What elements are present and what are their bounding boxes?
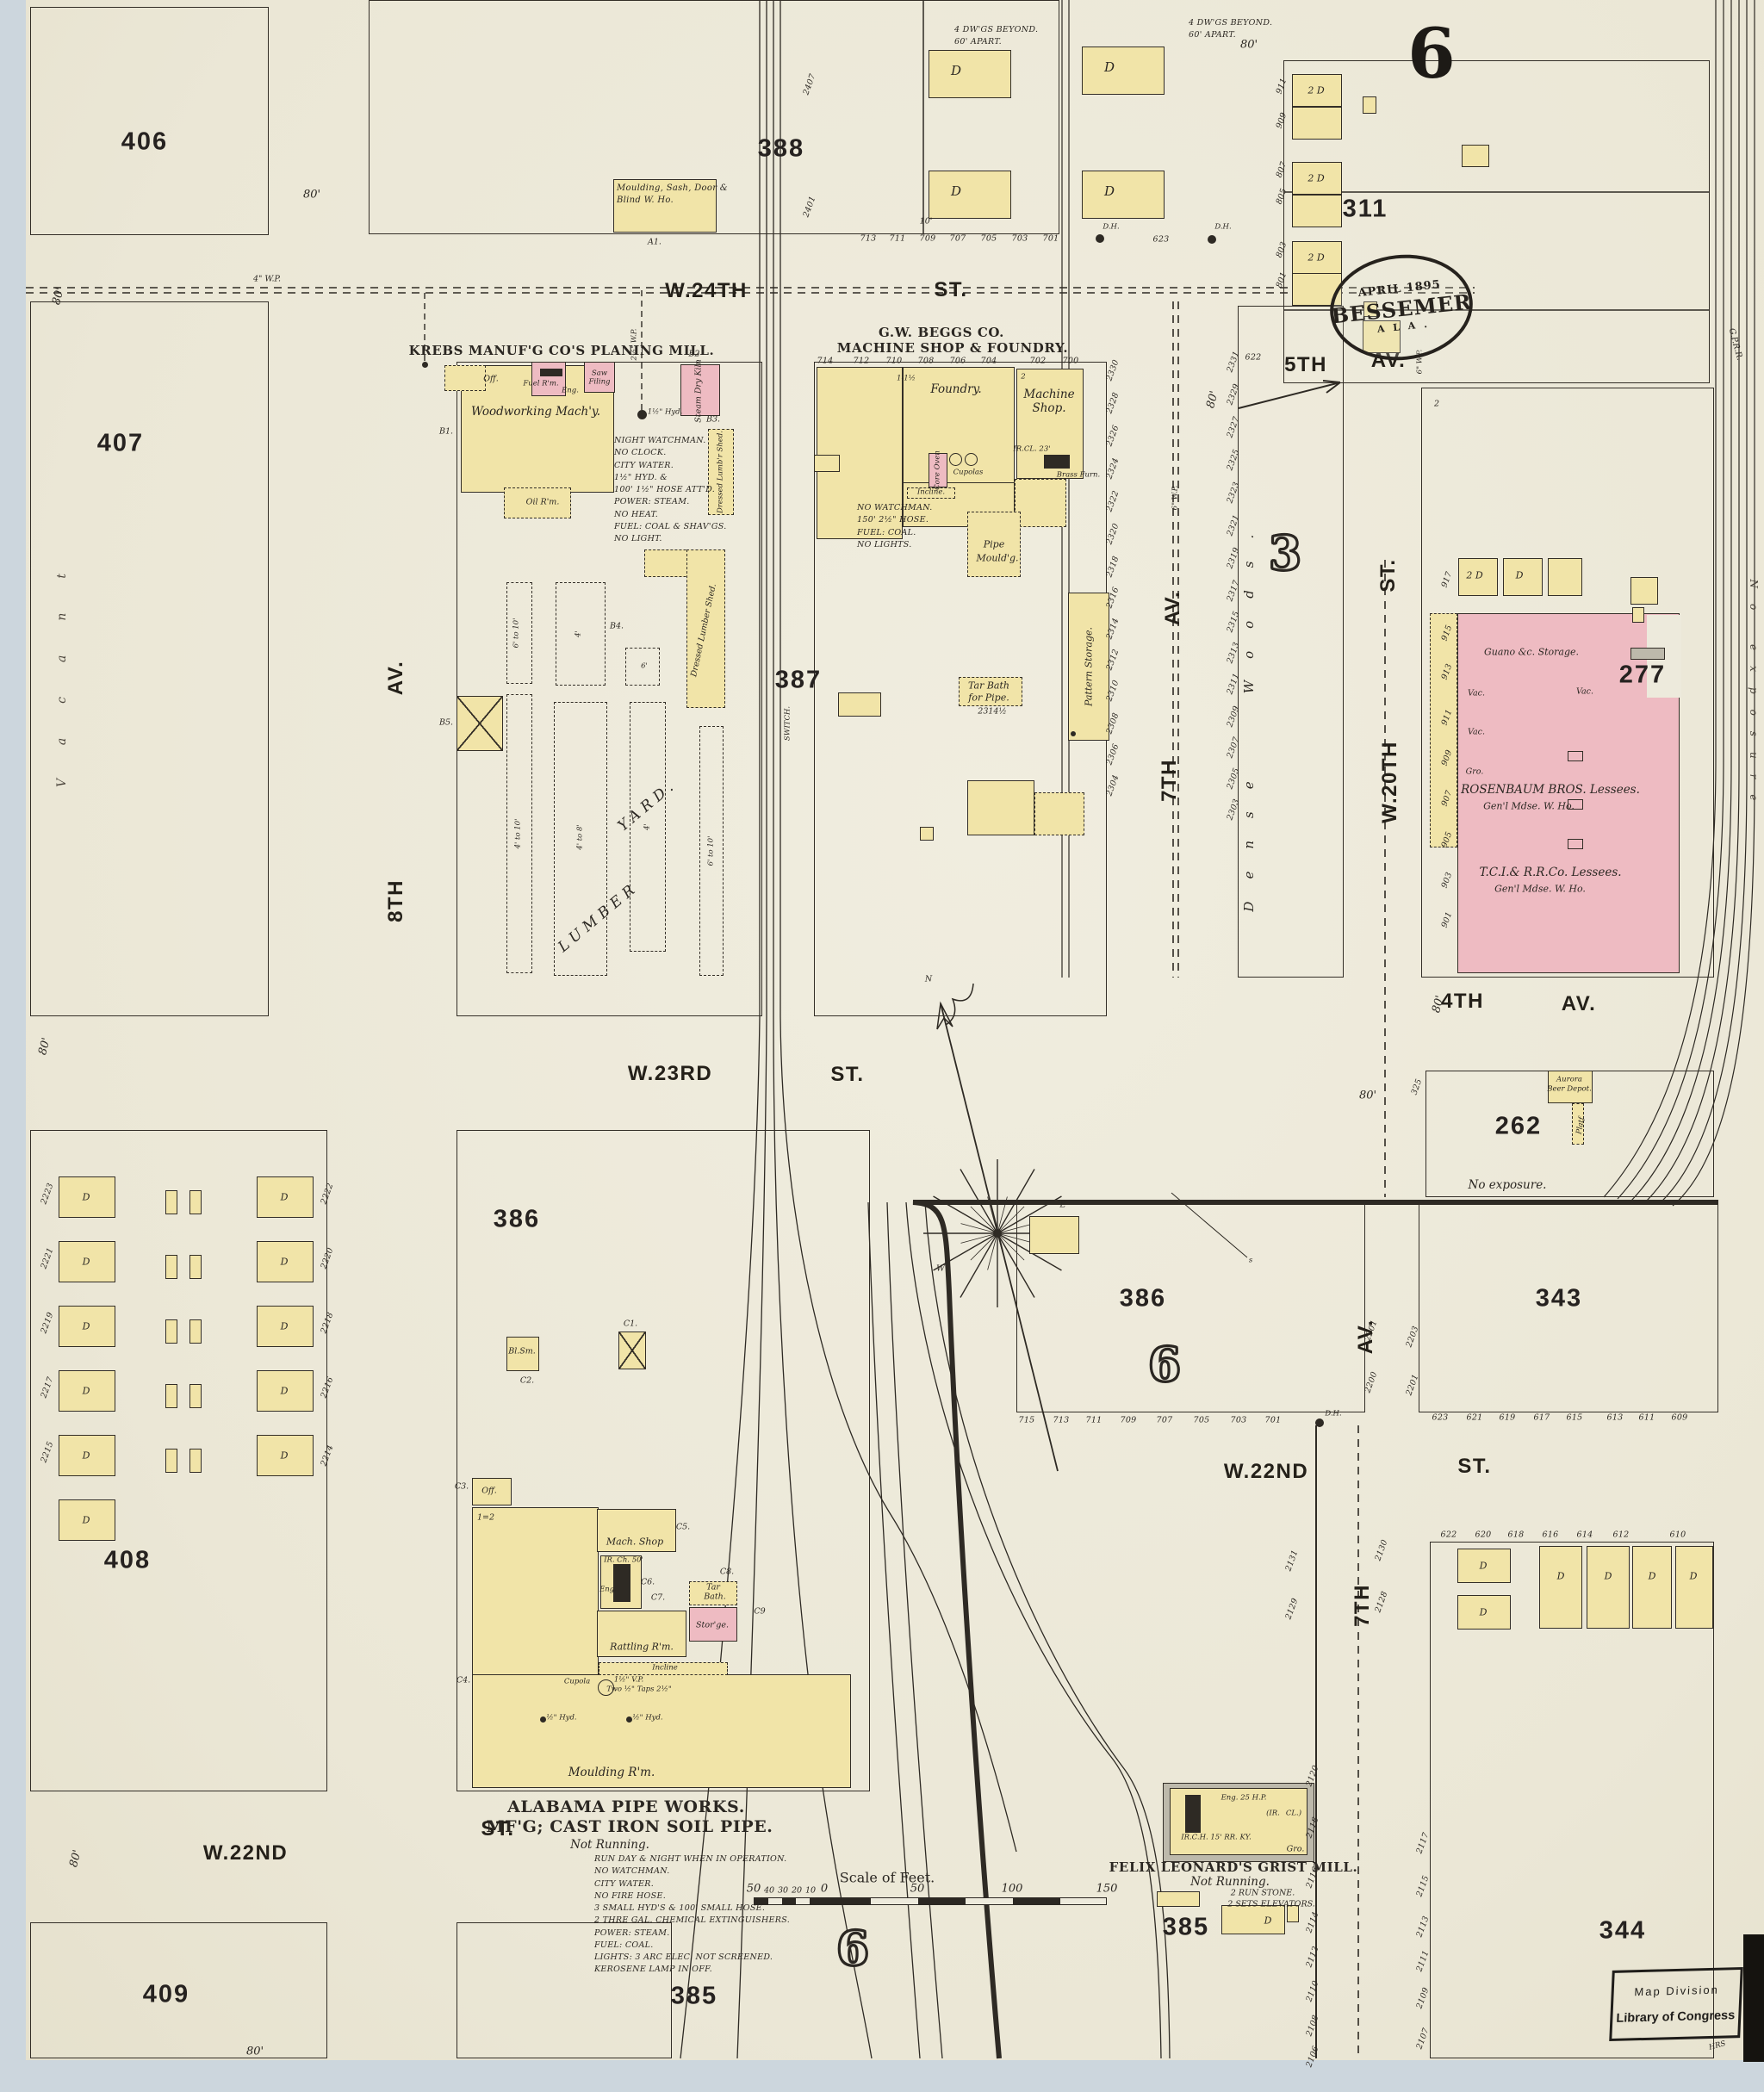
map-label: C8.	[720, 1568, 734, 1578]
map-label: 2322	[1104, 489, 1121, 513]
map-label: D	[1104, 59, 1115, 75]
street-4th-av: 4TH	[1441, 990, 1484, 1014]
compass-north-label: N	[925, 976, 932, 985]
map-label: C2.	[520, 1377, 534, 1387]
map-label: D	[83, 1450, 90, 1462]
map-label: 713	[860, 234, 876, 244]
map-label: Incline	[652, 1664, 678, 1672]
map-label: 620	[1475, 1530, 1491, 1540]
small-building	[1462, 145, 1489, 167]
map-label: 2 D	[1466, 570, 1482, 581]
steam-dry-kiln-label: Steam Dry Kiln	[695, 359, 705, 422]
dwelling	[1539, 1546, 1582, 1629]
map-label: 2113	[1414, 1915, 1431, 1939]
warehouse-opening	[1568, 839, 1583, 849]
map-label: 621	[1466, 1413, 1482, 1423]
map-label: 711	[1085, 1416, 1102, 1425]
map-label: 705	[1193, 1416, 1209, 1425]
block-number-277: 277	[1619, 661, 1666, 690]
grist-mill-title: FELIX LEONARD'S GRIST MILL.	[1109, 1859, 1358, 1875]
small-building	[1363, 96, 1376, 114]
map-label: D	[83, 1515, 90, 1526]
map-label: Vac.	[1468, 729, 1485, 738]
map-label: Gen'l Mdse. W. Ho.	[1494, 883, 1586, 894]
map-label: 619	[1499, 1413, 1515, 1423]
map-label: C6.	[641, 1579, 655, 1588]
dwelling	[1082, 171, 1165, 219]
map-label: 2 D	[1307, 252, 1324, 264]
map-label: 700	[1062, 357, 1078, 366]
map-label: 617	[1533, 1413, 1550, 1423]
map-label: 2112	[1304, 1945, 1320, 1969]
block-number-262: 262	[1495, 1113, 1542, 1141]
dwelling	[1292, 195, 1342, 227]
map-label: Fuel R'm.	[523, 380, 558, 388]
map-label: 2½" W.P.	[630, 329, 638, 361]
map-label: 709	[1120, 1416, 1136, 1425]
dwellings-beyond-note: 4 DW'GS BEYOND.60' APART.	[1189, 17, 1272, 42]
map-label: 611	[1638, 1413, 1655, 1423]
no-exposure-label: No exposure.	[1469, 1178, 1547, 1192]
map-label: 80'	[246, 2045, 264, 2058]
map-label: IR.CL. 23'	[1013, 445, 1050, 453]
map-label: ½" Hyd.	[632, 1714, 662, 1722]
map-label: 712	[853, 357, 869, 366]
guano-storage-label: Guano &c. Storage.	[1484, 646, 1579, 657]
map-label: 20	[792, 1887, 802, 1896]
map-label: Woods.	[1241, 512, 1257, 694]
map-label: D	[951, 63, 961, 78]
map-label: Gro.	[1466, 768, 1484, 778]
map-label: Stor'ge.	[696, 1622, 729, 1631]
map-label: 623	[1432, 1413, 1448, 1423]
map-label: 2314½	[978, 708, 1006, 717]
shed-b5	[457, 696, 503, 751]
map-label: C1.	[624, 1320, 637, 1330]
map-label: Vac.	[1468, 690, 1485, 699]
pipeworks-main	[472, 1507, 599, 1676]
map-label: 2326	[1104, 424, 1121, 448]
double-hydrant-dot	[1208, 235, 1216, 244]
warehouse-yellow-strip	[1430, 613, 1457, 847]
block-number-385-east: 385	[1163, 1914, 1209, 1942]
map-label: Bl.Sm.	[508, 1348, 536, 1357]
grist-mill-status: Not Running.	[1190, 1875, 1270, 1889]
map-label: 701	[1042, 234, 1059, 244]
map-label: 715	[1018, 1416, 1034, 1425]
outline-number-3: 3	[1269, 525, 1301, 580]
pipeworks-title-1: ALABAMA PIPE WORKS.	[507, 1797, 745, 1816]
map-label: D	[1480, 1607, 1488, 1618]
map-label: B3.	[706, 416, 720, 425]
map-label: 2200	[1363, 1370, 1379, 1394]
map-label: D	[281, 1386, 289, 1397]
warehouse-stairs	[1630, 648, 1665, 660]
map-label: 705	[980, 234, 997, 244]
map-label: D	[281, 1450, 289, 1462]
street-8th-av: 8TH	[384, 879, 408, 922]
map-label: IR. Ch. 50'	[604, 1556, 643, 1564]
rosenbaum-label: ROSENBAUM BROS. Lessees.	[1461, 783, 1640, 797]
map-label: Eng. 25 H.P.	[1221, 1794, 1267, 1802]
outbuilding	[165, 1190, 177, 1214]
cupola-icon	[598, 1679, 614, 1696]
map-label: 80'	[67, 1848, 84, 1868]
map-label: 618	[1507, 1530, 1524, 1540]
map-label: D.H.	[1214, 223, 1231, 231]
outline-number-6: 6	[836, 1921, 869, 1976]
map-label: 2 D	[1307, 173, 1324, 184]
map-label: C7.	[651, 1594, 665, 1604]
outbuilding	[165, 1449, 177, 1473]
street-w-22nd-east-st: ST.	[1457, 1455, 1491, 1479]
map-label: 6' to 10'	[512, 618, 520, 649]
map-label: ½" Hyd.	[546, 1714, 576, 1722]
small-building	[920, 827, 934, 841]
map-label: Pipe	[984, 538, 1004, 549]
map-label: 714	[817, 357, 833, 366]
map-label: D	[83, 1192, 90, 1203]
double-hydrant-dot	[1096, 234, 1104, 243]
map-label: 616	[1542, 1530, 1558, 1540]
map-label: 612	[1612, 1530, 1629, 1540]
map-label: D	[1605, 1571, 1612, 1582]
map-label: 10'	[920, 218, 933, 227]
map-label: Two ½" Taps 2½"	[606, 1685, 671, 1693]
street-7th-av-upper: 7TH	[1158, 759, 1182, 802]
dwelling	[1587, 1546, 1630, 1629]
map-label: D	[951, 183, 961, 199]
map-label: D	[281, 1257, 289, 1268]
map-label: 1½" V.P.	[614, 1676, 643, 1684]
map-label: 2320	[1104, 522, 1121, 546]
map-label: 80'	[303, 189, 320, 202]
street-7th-av-lower: 7TH	[1351, 1584, 1375, 1627]
map-label: Mould'g.	[976, 552, 1018, 563]
map-label: Off.	[483, 376, 499, 385]
map-label: 704	[980, 357, 997, 366]
map-label: D	[83, 1321, 90, 1332]
block-number-311: 311	[1343, 196, 1388, 224]
map-label: 701	[1264, 1416, 1281, 1425]
map-label: for Pipe.	[968, 692, 1009, 703]
map-label: D	[1649, 1571, 1656, 1582]
map-label: 623	[1152, 235, 1169, 245]
map-label: D	[1557, 1571, 1565, 1582]
map-label: 2106	[1304, 2045, 1320, 2069]
map-label: 4' to 10'	[514, 819, 522, 849]
map-label: Oil R'm.	[526, 499, 560, 508]
outbuilding	[189, 1384, 202, 1408]
map-label: Core Oven	[934, 450, 941, 490]
sheet-number: 6	[1407, 13, 1456, 94]
pipeworks-status: Not Running.	[570, 1838, 649, 1852]
pattern-storage-label: Pattern Storage.	[1083, 627, 1094, 706]
map-label: 4' to 8'	[576, 824, 584, 849]
map-label: 4'	[575, 630, 582, 637]
map-label: 2	[1434, 400, 1439, 410]
map-label: Incline.	[917, 488, 945, 496]
map-label: 613	[1606, 1413, 1623, 1423]
street-w-24th: W.24TH	[665, 279, 748, 303]
map-label: 2114	[1304, 1910, 1320, 1934]
small-building	[1630, 577, 1658, 605]
map-label: 622	[1245, 353, 1261, 363]
street-5th-av: 5TH	[1284, 353, 1327, 377]
sanborn-map-sheet: 4064074084093883873863853863853112772623…	[0, 0, 1764, 2092]
vacant-label: Vacant	[55, 539, 69, 787]
map-label: (IR.	[1266, 1810, 1280, 1817]
map-label: 6' to 10'	[707, 836, 715, 866]
krebs-title: KREBS MANUF'G CO'S PLANING MILL.	[409, 343, 715, 358]
map-label: s	[1249, 1257, 1252, 1264]
map-label: A1.	[648, 239, 661, 248]
woodworking-label: Woodworking Mach'y.	[471, 405, 600, 419]
map-label: 2109	[1414, 1986, 1431, 2010]
map-label: C4.	[457, 1677, 470, 1686]
small-building	[967, 780, 1034, 835]
map-label: 80'	[1359, 1089, 1376, 1102]
brass-furnace	[1044, 455, 1070, 469]
block-number-408: 408	[104, 1547, 151, 1575]
map-label: B4.	[610, 623, 624, 632]
street-w-20th-st: ST.	[1376, 558, 1401, 592]
block-number-406: 406	[121, 128, 168, 157]
map-label: Beer Depot.	[1547, 1085, 1592, 1093]
hydrant-dot	[637, 410, 647, 419]
map-label: D	[1690, 1571, 1698, 1582]
block-number-386-east: 386	[1120, 1285, 1166, 1313]
map-label: 1=2	[477, 1514, 494, 1524]
scale-of-feet-label: Scale of Feet.	[840, 1870, 935, 1886]
map-label: D	[281, 1321, 289, 1332]
block-number-409: 409	[143, 1981, 189, 2009]
map-label: 2110	[1304, 1979, 1320, 2003]
dwelling	[929, 50, 1011, 98]
map-label: 2108	[1304, 2014, 1320, 2038]
map-label: 6" W.P.	[1171, 486, 1179, 511]
street-w-20th: W.20TH	[1378, 741, 1402, 823]
map-label: 2131	[1283, 1549, 1300, 1573]
surveyor-initials: HRS	[1708, 2040, 1726, 2052]
dense-woods-label: Dense	[1241, 759, 1257, 911]
map-label: 100	[1002, 1883, 1023, 1896]
map-label: 2304	[1104, 773, 1121, 798]
map-label: 2 RUN STONE.	[1231, 1890, 1295, 1899]
map-label: 711	[889, 234, 905, 244]
map-label: 2316	[1104, 586, 1121, 610]
cupola-icon	[965, 453, 978, 466]
map-label: 2120	[1304, 1764, 1320, 1788]
dwellings-beyond-note: 4 DW'GS BEYOND.60' APART.	[954, 24, 1038, 49]
tci-label: T.C.I.& R.R.Co. Lessees.	[1479, 866, 1621, 879]
map-label: 2318	[1104, 555, 1121, 579]
outline-number-6: 6	[1148, 1337, 1181, 1392]
map-label: 80'	[1204, 389, 1221, 409]
map-label: 2111	[1414, 1949, 1431, 1973]
pipeworks-machine-shop-label: Mach. Shop	[606, 1536, 663, 1547]
map-label: 703	[1011, 234, 1028, 244]
street-w-24th-st: ST.	[934, 278, 967, 302]
map-label: B5.	[439, 719, 453, 729]
map-label: Eng.	[562, 387, 579, 394]
dwelling	[1548, 558, 1582, 596]
street-w-22nd-west: W.22ND	[203, 1841, 288, 1865]
map-label: Tar Bath	[968, 680, 1009, 691]
map-label: Bath.	[704, 1593, 726, 1603]
map-label: D.H.	[1325, 1410, 1341, 1418]
map-label: 1½" Hyd.	[648, 408, 683, 416]
map-label: 6'	[641, 662, 648, 670]
map-label: 2	[1021, 373, 1025, 381]
outbuilding	[189, 1190, 202, 1214]
loc-stamp-line2: Library of Congress	[1616, 2008, 1735, 2026]
beggs-title-1: G.W. BEGGS CO.	[879, 325, 1004, 340]
foundry-label: Foundry.	[930, 382, 981, 396]
map-label: Gen'l Mdse. W. Ho.	[1483, 800, 1575, 811]
map-label: 708	[917, 357, 934, 366]
map-label: 2330	[1104, 358, 1121, 382]
street-w-22nd-east: W.22ND	[1224, 1460, 1308, 1484]
krebs-office	[444, 365, 486, 391]
block-number-344: 344	[1599, 1917, 1646, 1946]
small-building	[1029, 1216, 1079, 1254]
map-label: Cupola	[564, 1678, 590, 1685]
street-4th-av-suffix: AV.	[1562, 992, 1597, 1016]
map-label: 325	[1410, 1077, 1425, 1096]
block-number-388: 388	[758, 135, 804, 164]
map-label: D	[281, 1192, 289, 1203]
beggs-title-2: MACHINE SHOP & FOUNDRY.	[837, 340, 1068, 356]
outbuilding	[165, 1384, 177, 1408]
map-label: Vac.	[1576, 688, 1593, 698]
map-label: 0	[821, 1883, 828, 1896]
outbuilding	[189, 1255, 202, 1279]
outbuilding	[189, 1449, 202, 1473]
railroad-name-label: G.P.R.R.	[1726, 327, 1743, 362]
map-label: CL.)	[1286, 1810, 1301, 1817]
beggs-info-note: NO WATCHMAN.150' 2½" HOSE.FUEL: COAL.NO …	[857, 502, 933, 551]
hydrant-dot	[626, 1716, 632, 1723]
map-label: 2 SETS ELEVATORS.	[1227, 1901, 1315, 1910]
block-number-385-west: 385	[671, 1983, 717, 2011]
street-8th-av-suffix: AV.	[384, 661, 408, 696]
map-label: 2128	[1373, 1590, 1389, 1614]
outbuilding	[189, 1319, 202, 1344]
block-number-343: 343	[1536, 1285, 1582, 1313]
map-label: IR.C.H. 15' RR. KY.	[1181, 1834, 1252, 1841]
small-building	[1632, 607, 1644, 623]
street-w-23rd: W.23RD	[628, 1062, 712, 1086]
edge-no-exposure-label: No exposure	[1748, 579, 1760, 816]
map-label: 1-1½	[897, 375, 916, 382]
map-label: D	[83, 1257, 90, 1268]
compass-west-label: W	[936, 1265, 945, 1275]
street-7th-av-upper-suffix: AV.	[1161, 591, 1185, 626]
map-label: 713	[1053, 1416, 1069, 1425]
pipeworks-boiler	[613, 1564, 630, 1602]
grist-mill-boiler	[1185, 1795, 1201, 1833]
map-label: Gro.	[1287, 1846, 1305, 1855]
map-label: 609	[1671, 1413, 1687, 1423]
hydrant-dot	[422, 362, 428, 368]
map-label: D.H.	[1102, 223, 1119, 231]
map-label: 702	[1029, 357, 1046, 366]
pipeworks-info-note: RUN DAY & NIGHT WHEN IN OPERATION.NO WAT…	[594, 1853, 790, 1977]
dwelling	[1082, 47, 1165, 95]
warehouse-opening	[1568, 751, 1583, 761]
small-building	[838, 692, 881, 717]
moulding-room-label: Moulding R'm.	[568, 1766, 655, 1779]
krebs-boiler	[540, 369, 562, 376]
krebs-info-note: NIGHT WATCHMAN.NO CLOCK.CITY WATER.1½" H…	[614, 435, 727, 545]
map-label: 2 D	[1307, 85, 1324, 96]
street-w-23rd-st: ST.	[830, 1063, 864, 1087]
small-building	[814, 455, 840, 472]
pipeworks-title-2: MF'G; CAST IRON SOIL PIPE.	[486, 1817, 773, 1836]
shed-c1	[618, 1332, 646, 1369]
map-label: Eng.	[599, 1586, 617, 1593]
map-label: 2107	[1414, 2027, 1431, 2051]
map-label: Brass Furn.	[1057, 471, 1100, 479]
map-label: D	[1264, 1915, 1272, 1927]
water-pipe-label: 4" W.P.	[253, 276, 281, 285]
map-label: Cupolas	[953, 469, 984, 476]
map-label: C5.	[676, 1524, 690, 1533]
hydrant-dot	[540, 1716, 546, 1723]
map-label: 622	[1440, 1530, 1457, 1540]
outbuilding	[165, 1255, 177, 1279]
outbuilding	[165, 1319, 177, 1344]
beggs-annex	[1015, 479, 1066, 527]
small-building	[1157, 1891, 1200, 1907]
map-label: 610	[1669, 1530, 1686, 1540]
machine-shop-label: Machine	[1023, 388, 1074, 401]
block-406-outline	[30, 7, 269, 235]
switch-track-label: SWITCH.	[784, 706, 792, 741]
map-label: 2306	[1104, 742, 1121, 767]
block-number-387: 387	[775, 667, 822, 695]
map-label: 80'	[36, 1036, 53, 1056]
block-number-386-west: 386	[494, 1206, 540, 1234]
map-label: C3.	[455, 1483, 469, 1493]
map-label: 703	[1230, 1416, 1246, 1425]
compass-east-label: E	[1060, 1201, 1066, 1211]
map-label: Saw	[592, 369, 607, 377]
dwelling	[1632, 1546, 1672, 1629]
dwelling	[1675, 1546, 1713, 1629]
map-label: D	[1516, 570, 1524, 581]
map-label: 706	[949, 357, 966, 366]
map-label: Filing	[589, 378, 611, 386]
moulding-warehouse-label: Moulding, Sash, Door &Blind W. Ho.	[617, 183, 728, 206]
map-label: 2115	[1414, 1874, 1431, 1898]
map-label: 150	[1096, 1883, 1118, 1896]
small-building	[1034, 792, 1084, 835]
loc-stamp-line1: Map Division	[1634, 1983, 1719, 1999]
map-label: 709	[919, 234, 935, 244]
cupola-icon	[949, 453, 962, 466]
map-label: C9	[754, 1608, 765, 1617]
map-label: B1.	[439, 428, 453, 438]
dwelling	[1292, 107, 1342, 140]
map-label: 707	[949, 234, 966, 244]
dwelling	[929, 171, 1011, 219]
map-label: D	[1104, 183, 1115, 199]
map-label: 614	[1576, 1530, 1593, 1540]
map-label: 2324	[1104, 456, 1121, 481]
double-hydrant-dot	[1315, 1418, 1324, 1427]
